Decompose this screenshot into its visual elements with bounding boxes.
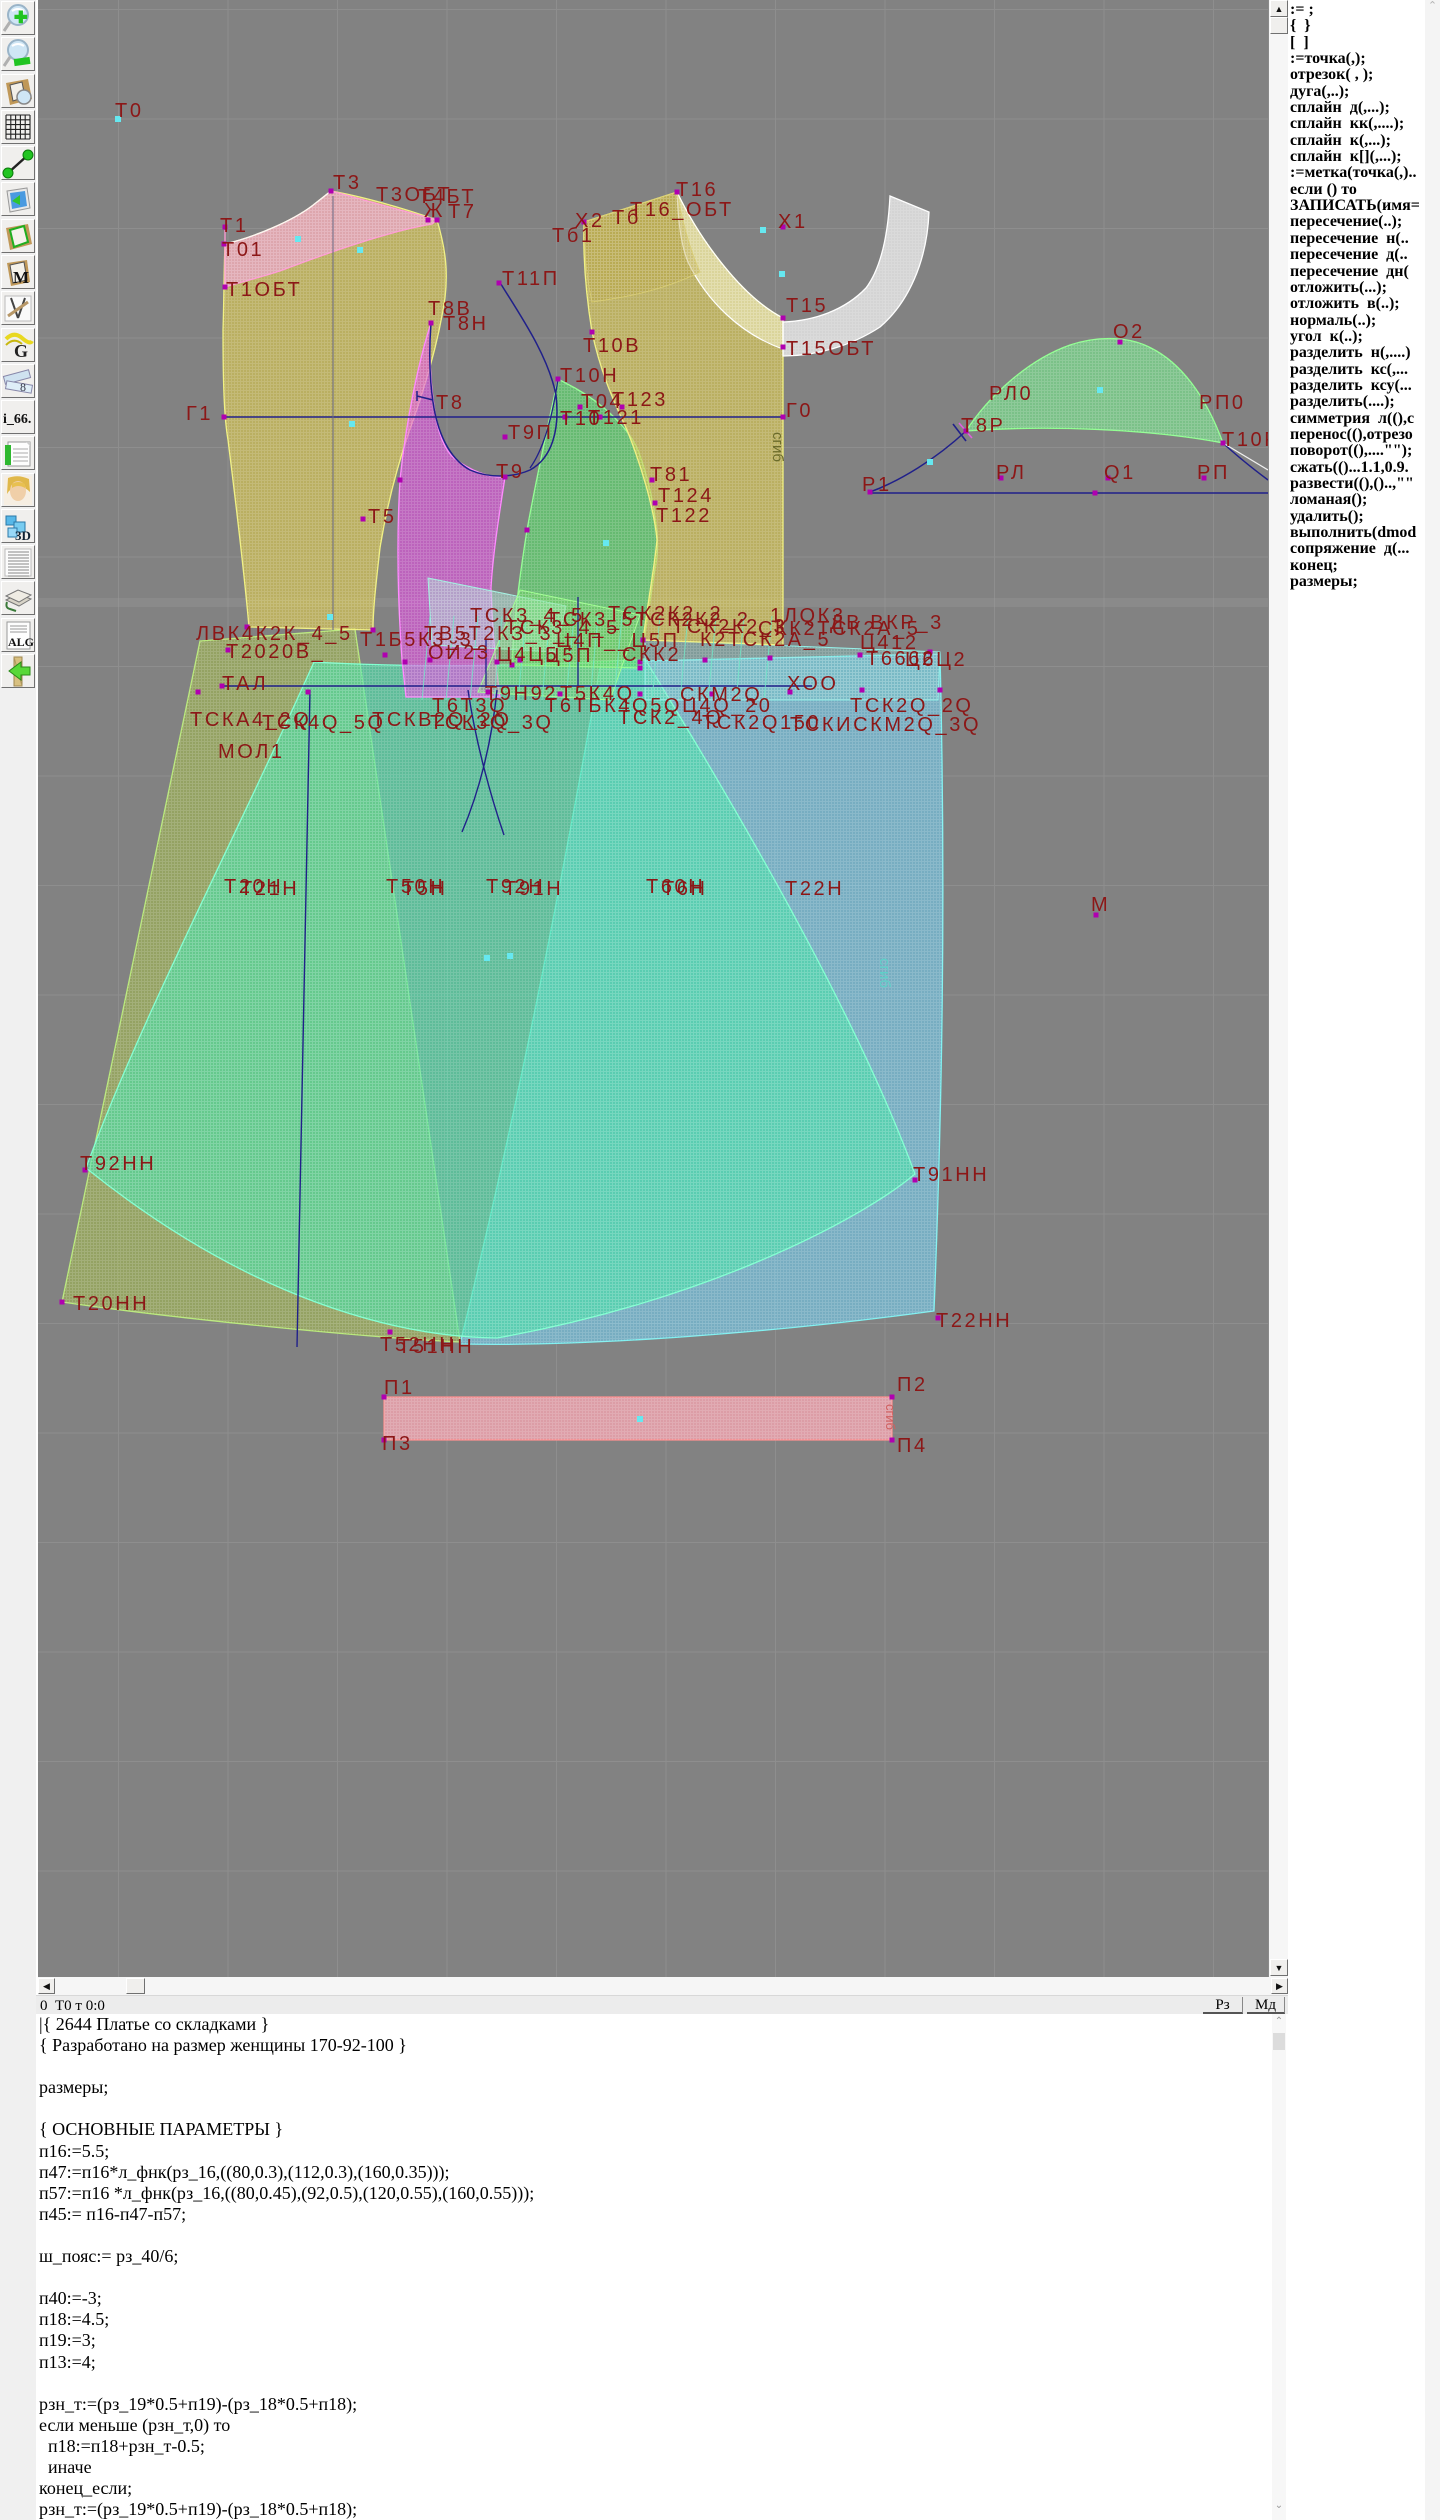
svg-text:Т81: Т81: [650, 464, 692, 486]
svg-text:Т15: Т15: [786, 295, 828, 317]
svg-text:Р1: Р1: [862, 474, 892, 496]
svg-text:Т22НН: Т22НН: [936, 1310, 1012, 1332]
svg-text:РП0: РП0: [1199, 392, 1246, 414]
svg-text:Т8Н: Т8Н: [443, 313, 489, 335]
svg-text:Т122: Т122: [656, 505, 712, 527]
svg-text:П4: П4: [897, 1435, 928, 1457]
svg-text:ТСКИСКМ2Q_3Q: ТСКИСКМ2Q_3Q: [790, 714, 981, 736]
svg-text:Ц6Ц2: Ц6Ц2: [905, 649, 967, 671]
svg-text:Т10В: Т10В: [583, 335, 641, 357]
svg-text:Т22Н: Т22Н: [785, 878, 844, 900]
svg-text:ТСК2Q_2Q: ТСК2Q_2Q: [850, 695, 974, 717]
svg-text:Т9: Т9: [496, 461, 525, 483]
svg-text:Т10Р: Т10Р: [1222, 429, 1268, 451]
svg-text:Г0: Г0: [786, 400, 813, 422]
svg-text:i_66.: i_66.: [3, 412, 31, 427]
svg-text:ТАЛ: ТАЛ: [222, 673, 268, 695]
svg-text:СКК2: СКК2: [622, 644, 681, 666]
svg-text:Т9П: Т9П: [508, 422, 554, 444]
svg-text:Т2020В_: Т2020В_: [226, 641, 325, 663]
svg-text:Ж: Ж: [424, 200, 445, 222]
svg-text:ТСК3_4_5: ТСК3_4_5: [470, 605, 585, 627]
svg-text:G: G: [14, 341, 28, 361]
svg-text:К2ТСК2А_5: К2ТСК2А_5: [700, 629, 831, 651]
svg-text:РП: РП: [1197, 462, 1230, 484]
svg-text:РЛ0: РЛ0: [989, 383, 1033, 405]
svg-text:Т10Н: Т10Н: [560, 365, 619, 387]
svg-text:Т124: Т124: [658, 485, 714, 507]
svg-text:ТСК2К2_2: ТСК2К2_2: [608, 603, 723, 625]
svg-text:Т3: Т3: [333, 172, 362, 194]
svg-text:3D: 3D: [15, 528, 31, 542]
svg-text:сгиб: сгиб: [769, 432, 786, 462]
svg-text:Т92НН: Т92НН: [80, 1153, 156, 1175]
svg-text:Ц5П: Ц5П: [545, 645, 593, 667]
svg-text:Т16_ОБТ: Т16_ОБТ: [630, 199, 734, 221]
svg-text:ТСК4Q_5Q: ТСК4Q_5Q: [262, 712, 386, 734]
svg-text:Т5К4Q: Т5К4Q: [560, 683, 635, 705]
svg-text:Т1Б5К3_3_: Т1Б5К3_3_: [360, 629, 487, 651]
svg-text:СКМ2Q: СКМ2Q: [680, 684, 762, 706]
svg-text:Т16: Т16: [676, 179, 718, 201]
svg-text:8: 8: [20, 380, 26, 394]
svg-text:Q1: Q1: [1104, 462, 1136, 484]
svg-text:Т6Н: Т6Н: [662, 878, 708, 900]
svg-text:РЛ: РЛ: [996, 462, 1027, 484]
svg-text:сгиб: сгиб: [883, 1404, 898, 1430]
svg-text:П2: П2: [897, 1374, 928, 1396]
svg-text:Т8Р: Т8Р: [961, 415, 1005, 437]
svg-text:Т1ОБТ: Т1ОБТ: [226, 279, 302, 301]
svg-text:Т21Н: Т21Н: [240, 878, 299, 900]
svg-text:Т121: Т121: [588, 407, 644, 429]
svg-text:Т5: Т5: [368, 506, 397, 528]
svg-text:Т5Н: Т5Н: [402, 878, 448, 900]
svg-text:Т8: Т8: [436, 392, 465, 414]
svg-text:Т0: Т0: [115, 100, 144, 122]
svg-text:Г1: Г1: [186, 403, 213, 425]
svg-text:Т91НН: Т91НН: [913, 1164, 989, 1186]
svg-text:О2: О2: [1113, 321, 1145, 343]
svg-text:Т91Н: Т91Н: [504, 878, 563, 900]
svg-text:Т1: Т1: [220, 215, 249, 237]
svg-text:Т7: Т7: [448, 201, 477, 223]
svg-text:МОЛ1: МОЛ1: [218, 741, 285, 763]
svg-text:М: М: [1091, 894, 1110, 916]
svg-text:1ЛQК3: 1ЛQК3: [770, 605, 846, 627]
svg-text:Т15ОБТ: Т15ОБТ: [786, 338, 876, 360]
svg-text:сгиб: сгиб: [876, 958, 893, 988]
svg-text:Т51НН: Т51НН: [398, 1336, 474, 1358]
svg-text:Т20НН: Т20НН: [73, 1293, 149, 1315]
svg-text:Т11П: Т11П: [502, 268, 560, 290]
svg-text:ДВ ВКР_3: ДВ ВКР_3: [830, 612, 944, 634]
svg-text:ХОО: ХОО: [787, 673, 839, 695]
svg-text:П1: П1: [384, 1377, 415, 1399]
svg-text:П3: П3: [382, 1433, 413, 1455]
svg-text:M: M: [13, 268, 29, 287]
svg-text:ALG: ALG: [8, 635, 34, 649]
svg-text:Т6Т3Q: Т6Т3Q: [432, 695, 507, 717]
svg-text:Т01: Т01: [222, 239, 264, 261]
svg-text:Х1: Х1: [778, 211, 808, 233]
svg-text:Тб1: Тб1: [552, 225, 595, 247]
